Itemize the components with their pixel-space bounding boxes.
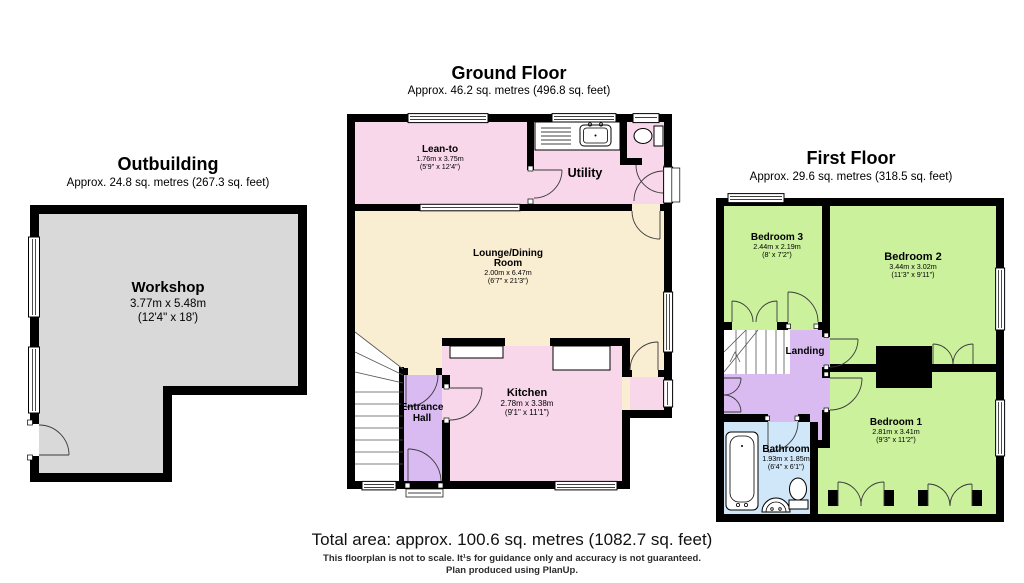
first-floor-subtitle: Approx. 29.6 sq. metres (318.5 sq. feet) [750, 171, 953, 183]
wc-window [633, 114, 659, 123]
bathroom-dims-imperial: (6'4" x 6'1") [768, 462, 804, 471]
workshop-dims-metric: 3.77m x 5.48m [130, 298, 206, 310]
floorplan-canvas: Outbuilding Approx. 24.8 sq. metres (267… [0, 0, 1024, 583]
bathtub [726, 432, 758, 510]
credit-text: Plan produced using PlanUp. [0, 565, 1024, 576]
landing-label: Landing [786, 346, 825, 357]
lean-to-window [408, 114, 488, 123]
bathroom-toilet [789, 478, 808, 509]
outbuilding-plan: Outbuilding Approx. 24.8 sq. metres (267… [28, 154, 308, 482]
bedroom1-window [996, 400, 1005, 456]
bedroom2-dims-imperial: (11'3" x 9'11") [891, 270, 934, 279]
bedroom3-window [728, 194, 784, 203]
stairs-window-bottom [362, 481, 396, 490]
workshop-label: Workshop [131, 279, 204, 296]
lounge-window-right [664, 292, 673, 352]
kitchen-unit-left [450, 346, 503, 358]
outbuilding-title: Outbuilding [118, 154, 219, 174]
disclaimer-text: This floorplan is not to scale. It¹s for… [0, 553, 1024, 564]
first-floor-plan: First Floor Approx. 29.6 sq. metres (318… [716, 148, 1005, 522]
bedroom2-window [996, 268, 1005, 330]
kitchen-unit-right [553, 346, 610, 370]
entrance-hall-label-1: Entrance [401, 402, 444, 413]
kitchen-window-bottom [555, 481, 617, 490]
bedroom1-dims-imperial: (9'3" x 11'2") [876, 435, 916, 444]
lean-to-dims-imperial: (5'9" x 12'4") [420, 162, 460, 171]
utility-window [552, 114, 616, 123]
workshop-window-top [29, 237, 40, 317]
first-floor-stairs-area [724, 330, 790, 374]
total-area-text: Total area: approx. 100.6 sq. metres (10… [0, 530, 1024, 550]
utility-label: Utility [568, 166, 603, 180]
lean-to-internal-window [420, 204, 520, 211]
workshop-dims-imperial: (12'4" x 18') [138, 312, 198, 324]
kitchen-side-area [630, 377, 664, 410]
floorplan-page: Outbuilding Approx. 24.8 sq. metres (267… [0, 0, 1024, 583]
ground-floor-plan: Ground Floor Approx. 46.2 sq. metres (49… [347, 63, 680, 497]
workshop-window-bottom [29, 347, 40, 413]
lounge-dims-imperial: (6'7" x 21'3") [488, 276, 528, 285]
kitchen-label: Kitchen [507, 387, 548, 399]
entrance-hall-label-2: Hall [413, 413, 432, 424]
kitchen-dims-metric: 2.78m x 3.38m [501, 399, 554, 408]
ground-floor-title: Ground Floor [452, 63, 567, 83]
ground-floor-subtitle: Approx. 46.2 sq. metres (496.8 sq. feet) [408, 85, 611, 97]
kitchen-window-right [664, 380, 673, 407]
utility-sink-unit [535, 122, 620, 150]
bedroom3-dims-imperial: (8' x 7'2") [762, 250, 792, 259]
outbuilding-subtitle: Approx. 24.8 sq. metres (267.3 sq. feet) [67, 177, 270, 189]
first-floor-title: First Floor [807, 148, 896, 168]
kitchen-dims-imperial: (9'1" x 11'1") [505, 408, 549, 417]
